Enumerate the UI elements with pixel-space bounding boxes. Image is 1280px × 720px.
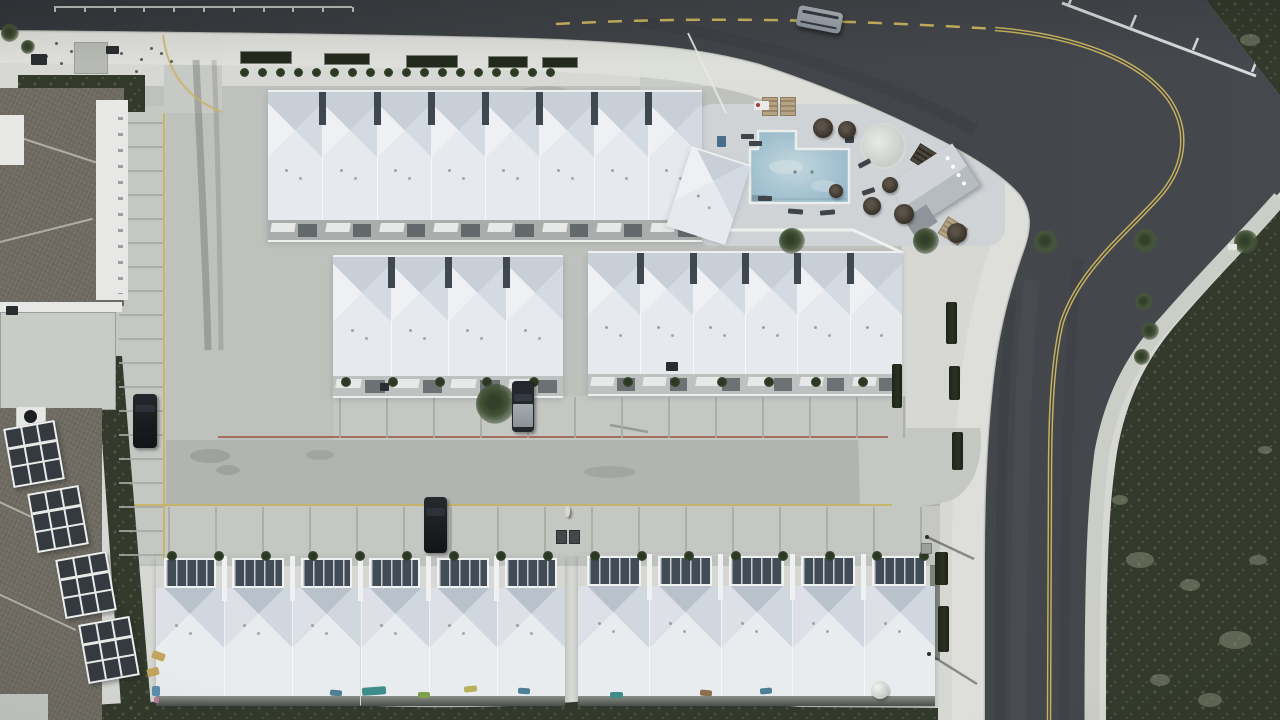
building-wall-white xyxy=(96,100,128,300)
ac-fan xyxy=(24,410,37,423)
drive-aisle xyxy=(118,440,940,506)
aerial-photo-scene xyxy=(0,0,1280,720)
apron-north xyxy=(334,396,906,440)
concrete-pad xyxy=(0,312,116,410)
pad-corner xyxy=(0,694,48,720)
roof-gable-white xyxy=(0,115,24,165)
wall-windows xyxy=(118,104,123,294)
pad-ac-unit xyxy=(6,306,18,315)
ground-roads-pool xyxy=(0,0,1280,720)
apron-south xyxy=(148,506,940,556)
building-edge-white xyxy=(0,302,122,312)
neighbor-building-south xyxy=(0,408,102,720)
